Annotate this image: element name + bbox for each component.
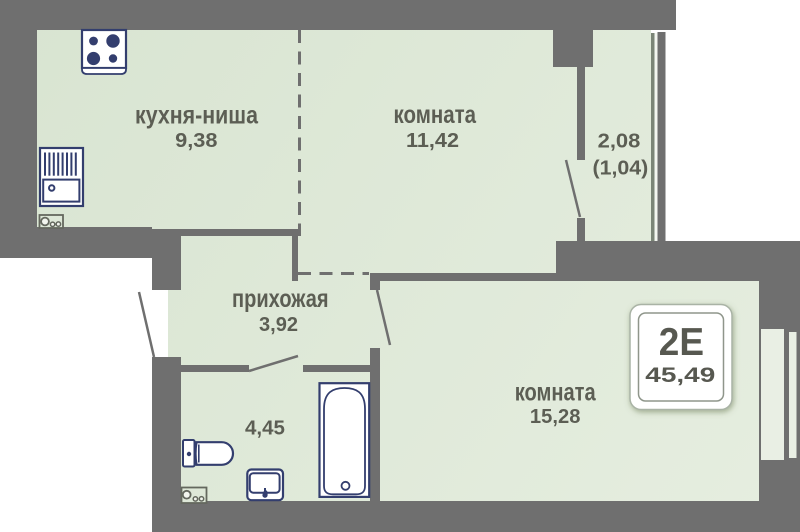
svg-text:3,92: 3,92 (259, 314, 298, 336)
svg-text:комната: комната (515, 379, 597, 407)
svg-text:2,08: 2,08 (598, 131, 641, 153)
svg-text:прихожая: прихожая (232, 285, 329, 313)
svg-text:(1,04): (1,04) (593, 158, 649, 180)
svg-text:комната: комната (394, 101, 477, 129)
svg-text:кухня-ниша: кухня-ниша (135, 102, 259, 130)
svg-text:2Е: 2Е (659, 321, 704, 364)
svg-text:11,42: 11,42 (406, 130, 459, 152)
svg-text:4,45: 4,45 (245, 418, 285, 440)
svg-text:9,38: 9,38 (175, 130, 217, 152)
svg-text:45,49: 45,49 (645, 364, 715, 387)
svg-text:15,28: 15,28 (530, 406, 581, 428)
